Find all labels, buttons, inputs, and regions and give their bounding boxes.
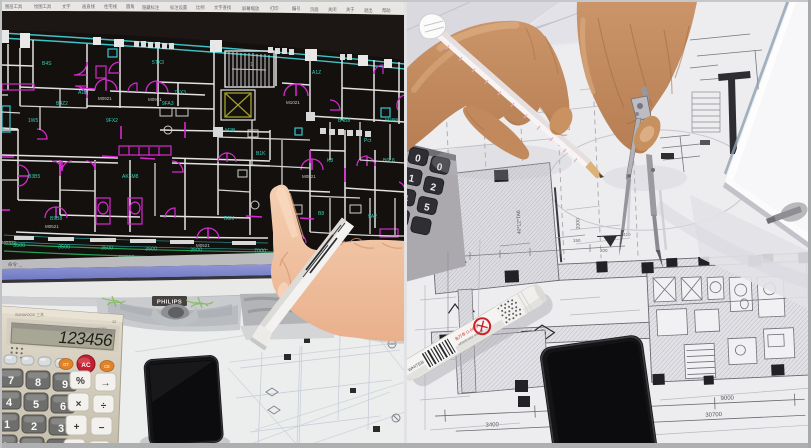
svg-text:8: 8 <box>35 377 41 389</box>
svg-text:12: 12 <box>112 320 116 324</box>
svg-text:住宅线: 住宅线 <box>104 3 118 9</box>
svg-text:比例: 比例 <box>196 4 205 11</box>
svg-text:M0521: M0521 <box>45 224 59 229</box>
svg-text:B4S: B4S <box>42 61 52 67</box>
svg-text:A1Z: A1Z <box>312 70 321 76</box>
svg-text:9: 9 <box>62 379 68 391</box>
svg-text:4: 4 <box>6 397 13 409</box>
svg-text:编号: 编号 <box>292 5 301 12</box>
svg-text:→: → <box>101 378 111 389</box>
svg-text:2000: 2000 <box>575 218 582 230</box>
svg-text:200: 200 <box>600 248 608 253</box>
svg-text:÷: ÷ <box>101 401 107 412</box>
svg-text:3: 3 <box>58 423 64 435</box>
svg-text:M0921: M0921 <box>148 97 162 102</box>
svg-text:B3B5: B3B5 <box>28 174 40 180</box>
svg-text:命令: _: 命令: _ <box>8 261 23 268</box>
svg-text:M2B: M2B <box>225 128 236 134</box>
svg-text:1: 1 <box>4 419 10 431</box>
svg-text:9A2: 9A2 <box>368 214 377 220</box>
svg-text:绘图工具: 绘图工具 <box>34 3 52 10</box>
svg-text:1W5: 1W5 <box>28 118 39 124</box>
svg-text:−: − <box>99 423 105 434</box>
svg-text:AC: AC <box>81 362 91 369</box>
svg-text:M4B8: M4B8 <box>385 118 398 124</box>
svg-text:标注设置: 标注设置 <box>170 4 188 11</box>
svg-text:关于: 关于 <box>346 6 355 13</box>
svg-text:40*12*TA6: 40*12*TA6 <box>516 210 523 234</box>
svg-text:3500: 3500 <box>101 246 113 252</box>
svg-text:M KC 40125B: M KC 40125B <box>85 327 107 331</box>
svg-text:3500: 3500 <box>13 243 25 249</box>
svg-text:B4B8: B4B8 <box>338 118 350 124</box>
svg-text:123456: 123456 <box>57 328 114 350</box>
svg-text:B4Z2: B4Z2 <box>56 101 68 107</box>
svg-text:文字查找: 文字查找 <box>214 4 232 11</box>
svg-text:退出: 退出 <box>364 7 373 14</box>
svg-text:B9B8: B9B8 <box>50 216 62 222</box>
svg-text:AK5M8: AK5M8 <box>122 174 139 180</box>
svg-text:2: 2 <box>31 421 37 433</box>
svg-text:B1K: B1K <box>256 151 266 157</box>
svg-text:150: 150 <box>573 238 581 243</box>
svg-text:屏幕缩放: 屏幕缩放 <box>242 5 260 12</box>
svg-text:+: + <box>74 422 80 433</box>
svg-text:SUNWOOD 三木: SUNWOOD 三木 <box>15 312 44 317</box>
svg-text:7FX3: 7FX3 <box>174 90 186 96</box>
svg-text:文字: 文字 <box>62 3 71 10</box>
svg-text:6: 6 <box>60 401 66 413</box>
svg-text:关闭: 关闭 <box>328 6 337 13</box>
svg-text:3500: 3500 <box>58 245 70 251</box>
svg-text:B8: B8 <box>318 211 324 217</box>
svg-text:×: × <box>76 399 82 410</box>
svg-text:画直线: 画直线 <box>82 3 96 10</box>
svg-text:A1B: A1B <box>78 90 88 96</box>
svg-text:5TK3: 5TK3 <box>152 60 164 66</box>
svg-text:B6L8: B6L8 <box>383 158 395 164</box>
svg-text:GT: GT <box>63 362 69 367</box>
svg-text:9FX2: 9FX2 <box>106 118 118 124</box>
svg-text:9000: 9000 <box>720 395 734 402</box>
svg-text:3500: 3500 <box>190 248 202 254</box>
svg-text:隐藏标注: 隐藏标注 <box>142 4 160 11</box>
svg-text:M0821: M0821 <box>302 174 316 179</box>
svg-text:1: 1 <box>250 62 253 68</box>
svg-text:打印: 打印 <box>270 5 279 12</box>
svg-text:9FA3: 9FA3 <box>162 101 174 107</box>
svg-text:B8M: B8M <box>224 216 234 222</box>
svg-text:7: 7 <box>8 375 14 387</box>
svg-text:CE: CE <box>104 364 110 369</box>
svg-text:圆角: 圆角 <box>126 3 135 10</box>
svg-text:3500: 3500 <box>145 247 157 253</box>
svg-text:%: % <box>76 376 85 387</box>
svg-text:M0921: M0921 <box>98 96 112 101</box>
svg-text:30700: 30700 <box>705 412 723 419</box>
svg-text:Pct: Pct <box>364 138 372 144</box>
svg-text:5: 5 <box>33 399 39 411</box>
svg-text:M1021: M1021 <box>286 100 300 105</box>
svg-text:帮助: 帮助 <box>382 7 391 14</box>
